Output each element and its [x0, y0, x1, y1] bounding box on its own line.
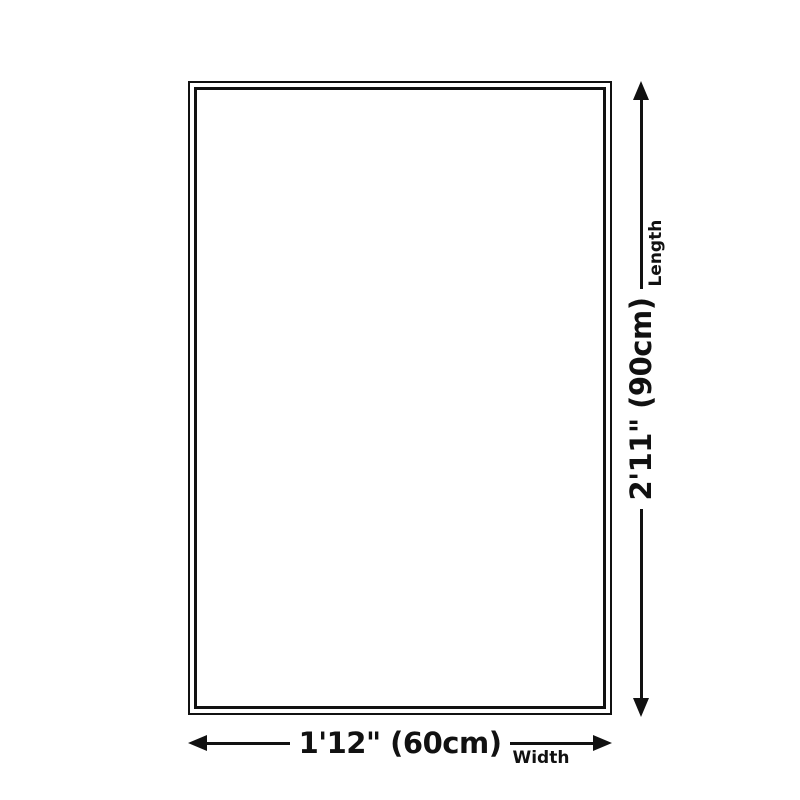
width-value: 1'12" (60cm): [299, 726, 502, 760]
length-arrow-line-lower: [640, 509, 643, 698]
width-label: Width: [512, 748, 569, 768]
arrowhead-right-icon: [593, 735, 612, 751]
width-dimension-arrow: 1'12" (60cm) Width: [188, 718, 612, 768]
length-arrow-line-upper: [640, 100, 643, 289]
length-value: 2'11" (90cm): [624, 298, 658, 501]
length-arrow-line-upper-wrap: Length: [616, 100, 666, 289]
width-arrow-line-right-wrap: Width: [510, 718, 593, 768]
length-dimension-arrow: 2'11" (90cm) Length: [616, 81, 666, 717]
arrowhead-left-icon: [188, 735, 207, 751]
rug-outline-inner-border: [194, 87, 606, 709]
rug-outline: [188, 81, 612, 715]
size-diagram: 1'12" (60cm) Width 2'11" (90cm) Length: [0, 0, 800, 800]
length-label: Length: [646, 220, 666, 287]
arrowhead-down-icon: [633, 698, 649, 717]
width-arrow-line-right: [510, 742, 593, 745]
arrowhead-up-icon: [633, 81, 649, 100]
width-arrow-line-left: [207, 742, 290, 745]
